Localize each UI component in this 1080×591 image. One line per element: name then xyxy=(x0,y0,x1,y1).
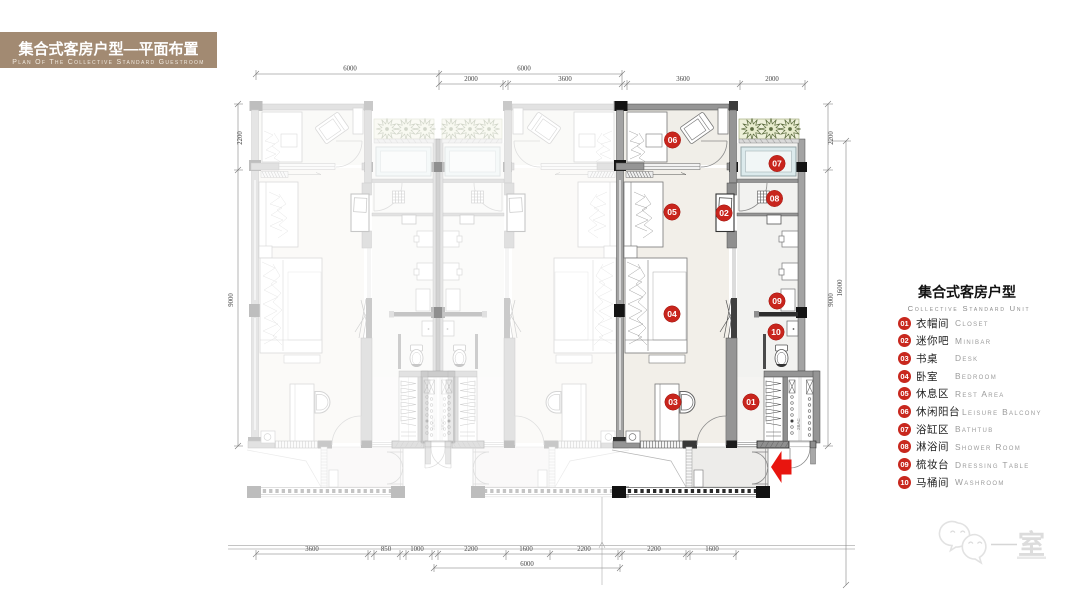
svg-text:3600: 3600 xyxy=(558,76,572,83)
svg-text:9000: 9000 xyxy=(228,293,235,307)
svg-text:3600: 3600 xyxy=(676,76,690,83)
svg-text:3600: 3600 xyxy=(305,546,319,553)
svg-text:2000: 2000 xyxy=(765,76,779,83)
svg-text:6000: 6000 xyxy=(517,66,531,73)
svg-text:2200: 2200 xyxy=(647,546,661,553)
svg-text:1600: 1600 xyxy=(705,546,719,553)
svg-text:1600: 1600 xyxy=(519,546,533,553)
svg-text:2000: 2000 xyxy=(464,76,478,83)
svg-text:16000: 16000 xyxy=(837,279,844,297)
svg-text:10: 10 xyxy=(771,327,781,337)
svg-text:04: 04 xyxy=(667,309,677,319)
svg-text:6000: 6000 xyxy=(343,66,357,73)
svg-text:室: 室 xyxy=(1018,529,1045,560)
svg-text:2200: 2200 xyxy=(237,131,244,145)
svg-text:850: 850 xyxy=(381,546,392,553)
svg-text:6000: 6000 xyxy=(520,561,534,568)
svg-text:02: 02 xyxy=(719,208,729,218)
svg-text:1000: 1000 xyxy=(410,546,424,553)
svg-text:01: 01 xyxy=(746,397,756,407)
svg-text:2200: 2200 xyxy=(577,546,591,553)
svg-text:07: 07 xyxy=(772,159,782,169)
svg-text:2200: 2200 xyxy=(464,546,478,553)
svg-text:06: 06 xyxy=(668,135,678,145)
svg-text:09: 09 xyxy=(772,296,782,306)
svg-text:08: 08 xyxy=(770,194,780,204)
svg-text:9000: 9000 xyxy=(828,293,835,307)
svg-text:2BAC: 2BAC xyxy=(796,417,801,430)
svg-text:2200: 2200 xyxy=(828,131,835,145)
svg-text:05: 05 xyxy=(667,207,677,217)
svg-text:03: 03 xyxy=(668,397,678,407)
